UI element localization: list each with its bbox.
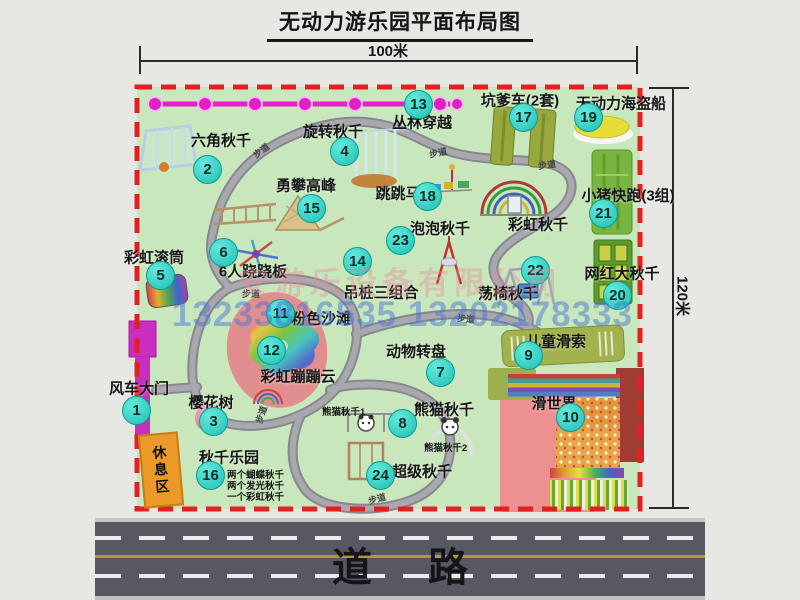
footpath-label: 步道: [242, 287, 260, 300]
park-layout-map: 无动力游乐园平面布局图 100米 120米 休息区 1 2 3 4 5 6 7 …: [0, 0, 800, 600]
height-dimension-label: 120米: [673, 276, 694, 316]
marker-21: 21: [589, 199, 618, 228]
road-label: 道路: [95, 535, 705, 593]
marker-8: 8: [388, 409, 417, 438]
marker-2: 2: [193, 155, 222, 184]
marker-16: 16: [196, 461, 225, 490]
marker-12: 12: [257, 336, 286, 365]
label-climbing-peak: 勇攀高峰: [276, 175, 336, 196]
marker-10: 10: [556, 403, 585, 432]
footpath-label: 步道: [537, 157, 557, 172]
footpath-label: 步道: [456, 311, 475, 326]
label-super-swing: 超级秋千: [392, 461, 452, 482]
marker-23: 23: [386, 226, 415, 255]
label-swing-chair: 荡椅秋千: [478, 283, 538, 304]
marker-24: 24: [366, 461, 395, 490]
marker-20: 20: [603, 281, 632, 310]
page-title: 无动力游乐园平面布局图: [267, 6, 533, 42]
dimension-tick-top-left: [139, 46, 141, 74]
hexagon-swing-icon: [140, 126, 196, 172]
marker-17: 17: [509, 103, 538, 132]
label-panda-swing-1: 熊猫秋千1: [322, 404, 365, 418]
label-hanging-piles: 吊桩三组合: [343, 282, 418, 303]
marker-5: 5: [146, 261, 175, 290]
label-pink-beach: 粉色沙滩: [291, 308, 351, 329]
slide-world-icon: [488, 368, 644, 512]
marker-15: 15: [297, 194, 326, 223]
swing-park-note-3: 一个彩虹秋千: [227, 489, 284, 503]
marker-19: 19: [574, 103, 603, 132]
marker-7: 7: [426, 358, 455, 387]
dimension-tick-right-top: [649, 87, 689, 89]
marker-3: 3: [199, 407, 228, 436]
label-bubble-swing: 泡泡秋千: [410, 218, 470, 239]
label-rainbow-swing: 彩虹秋千: [508, 214, 568, 235]
marker-14: 14: [343, 247, 372, 276]
marker-13: 13: [404, 90, 433, 119]
road: 道路: [95, 518, 705, 600]
width-dimension-label: 100米: [368, 40, 408, 61]
dimension-tick-top-right: [636, 46, 638, 74]
label-rotating-swing: 旋转秋千: [303, 121, 363, 142]
marker-22: 22: [521, 256, 550, 285]
label-panda-swing: 熊猫秋千: [414, 399, 474, 420]
dimension-tick-right-bottom: [649, 507, 689, 509]
marker-6: 6: [209, 238, 238, 267]
marker-11: 11: [266, 299, 295, 328]
label-hexagon-swing: 六角秋千: [191, 130, 251, 151]
marker-4: 4: [330, 137, 359, 166]
label-rainbow-cloud: 彩虹蹦蹦云: [260, 366, 335, 387]
label-big-swing: 网红大秋千: [584, 263, 659, 284]
label-panda-swing-2: 熊猫秋千2: [424, 440, 467, 454]
marker-9: 9: [514, 341, 543, 370]
marker-1: 1: [122, 396, 151, 425]
rest-area: 休息区: [138, 431, 184, 508]
marker-18: 18: [413, 182, 442, 211]
